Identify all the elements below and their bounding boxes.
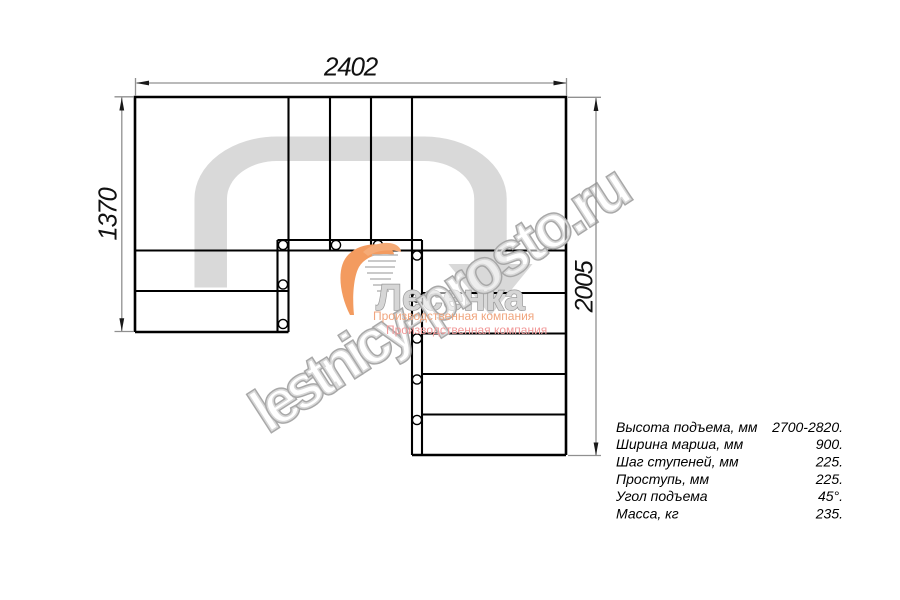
svg-text:2700-2820.: 2700-2820. (771, 419, 843, 435)
svg-text:Производственная компания: Производственная компания (373, 309, 534, 323)
svg-text:2005: 2005 (571, 260, 599, 313)
svg-text:225.: 225. (815, 454, 843, 470)
svg-text:Масса, кг: Масса, кг (616, 506, 679, 522)
svg-text:Шаг ступеней, мм: Шаг ступеней, мм (616, 454, 739, 470)
svg-text:2402: 2402 (323, 52, 379, 82)
svg-text:45°.: 45°. (818, 488, 843, 504)
svg-text:Ширина марша, мм: Ширина марша, мм (616, 436, 744, 452)
svg-text:Угол подъема: Угол подъема (615, 488, 708, 504)
svg-text:900.: 900. (816, 436, 843, 452)
svg-text:1370: 1370 (95, 188, 123, 241)
svg-text:225.: 225. (815, 471, 843, 487)
svg-text:Проступь, мм: Проступь, мм (616, 471, 710, 487)
svg-text:Производственная компания: Производственная компания (386, 323, 547, 337)
svg-text:235.: 235. (815, 506, 843, 522)
svg-text:Высота подъема, мм: Высота подъема, мм (616, 419, 758, 435)
